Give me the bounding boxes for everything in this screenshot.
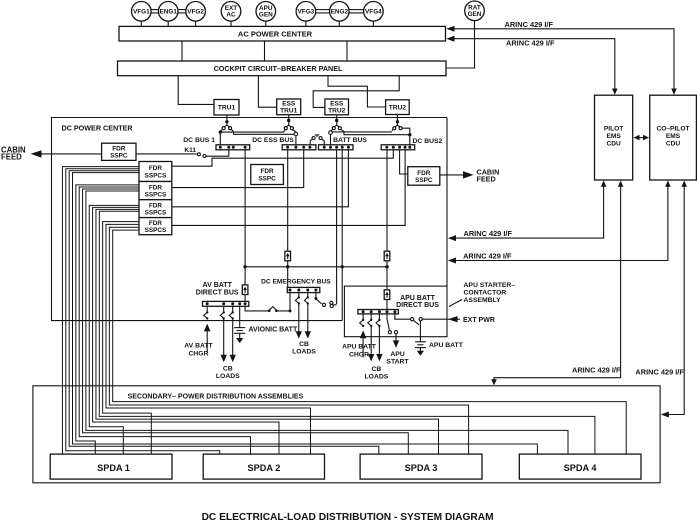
svg-text:DC BUS 1: DC BUS 1 [183, 137, 215, 144]
svg-text:START: START [386, 358, 409, 365]
svg-text:ARINC 429 I/F: ARINC 429 I/F [505, 20, 554, 29]
svg-text:CB: CB [371, 366, 381, 373]
svg-text:EMS: EMS [606, 133, 621, 140]
svg-text:CHGR: CHGR [349, 351, 369, 358]
svg-text:FDR: FDR [112, 146, 126, 153]
svg-text:SSPCS: SSPCS [145, 210, 167, 217]
svg-text:SPDA 3: SPDA 3 [405, 463, 438, 473]
svg-text:ARINC 429 I/F: ARINC 429 I/F [463, 252, 512, 261]
svg-text:BATT BUS: BATT BUS [333, 137, 367, 144]
svg-text:VFG1: VFG1 [133, 9, 150, 16]
svg-text:ARINC 429 I/F: ARINC 429 I/F [464, 229, 513, 238]
svg-text:CB: CB [223, 366, 233, 373]
svg-text:FDR: FDR [261, 168, 275, 175]
svg-text:CDU: CDU [606, 141, 621, 148]
svg-text:LOADS: LOADS [216, 373, 240, 380]
svg-text:SSPC: SSPC [110, 153, 128, 160]
svg-text:VFG3: VFG3 [298, 9, 315, 16]
svg-text:DC ELECTRICAL-LOAD DISTRIBUTIO: DC ELECTRICAL-LOAD DISTRIBUTION - SYSTEM… [202, 512, 494, 523]
svg-text:CO–PILOT: CO–PILOT [657, 126, 690, 133]
svg-text:APU BATT: APU BATT [429, 342, 464, 349]
svg-text:ENG1: ENG1 [159, 9, 177, 16]
svg-text:GEN: GEN [259, 12, 273, 19]
svg-text:APU: APU [390, 351, 404, 358]
svg-text:ESS: ESS [330, 100, 344, 107]
svg-text:K11: K11 [184, 147, 196, 154]
svg-text:ARINC 429 I/F: ARINC 429 I/F [506, 38, 555, 47]
svg-text:APU STARTER–: APU STARTER– [464, 282, 516, 289]
svg-text:ASSEMBLY: ASSEMBLY [464, 297, 502, 304]
svg-text:DC ESS BUS: DC ESS BUS [252, 137, 294, 144]
svg-text:AC: AC [226, 12, 236, 19]
svg-text:DIRECT BUS: DIRECT BUS [396, 302, 439, 309]
svg-text:CHGR: CHGR [188, 350, 208, 357]
svg-text:GEN: GEN [468, 11, 482, 18]
svg-text:AVIONIC BATT: AVIONIC BATT [249, 326, 298, 333]
svg-text:SSPCS: SSPCS [145, 172, 167, 179]
svg-text:SSPCS: SSPCS [145, 227, 167, 234]
svg-text:VFG2: VFG2 [187, 9, 204, 16]
svg-text:ARINC 429 I/F: ARINC 429 I/F [635, 367, 684, 376]
svg-text:EMS: EMS [666, 133, 681, 140]
svg-text:ENG2: ENG2 [331, 9, 349, 16]
svg-text:TRU2: TRU2 [389, 105, 407, 112]
svg-text:SSPC: SSPC [258, 175, 276, 182]
svg-text:DC EMERGENCY BUS: DC EMERGENCY BUS [261, 279, 331, 286]
svg-text:DC BUS2: DC BUS2 [413, 138, 443, 145]
svg-text:FDR: FDR [149, 202, 163, 209]
svg-text:ESS: ESS [282, 100, 296, 107]
svg-text:TRU1: TRU1 [218, 105, 236, 112]
svg-text:FDR: FDR [417, 170, 431, 177]
svg-text:FEED: FEED [1, 153, 22, 162]
svg-text:AC POWER CENTER: AC POWER CENTER [238, 30, 313, 39]
svg-text:LOADS: LOADS [292, 348, 316, 355]
svg-text:CONTACTOR: CONTACTOR [464, 289, 507, 296]
svg-text:FDR: FDR [149, 184, 163, 191]
svg-text:ARINC 429 I/F: ARINC 429 I/F [572, 366, 621, 375]
svg-text:SSPC: SSPC [415, 177, 433, 184]
svg-text:AV BATT: AV BATT [184, 343, 213, 350]
svg-text:FDR: FDR [149, 165, 163, 172]
svg-text:SECONDARY– POWER DISTRIBUTION: SECONDARY– POWER DISTRIBUTION ASSEMBLIES [128, 393, 304, 400]
svg-text:TRU2: TRU2 [328, 107, 346, 114]
svg-text:FEED: FEED [477, 174, 496, 183]
svg-text:PILOT: PILOT [604, 126, 623, 133]
svg-text:SPDA 4: SPDA 4 [564, 463, 598, 473]
svg-text:CB: CB [299, 341, 309, 348]
svg-text:SPDA 1: SPDA 1 [97, 463, 130, 473]
svg-text:TRU1: TRU1 [280, 107, 298, 114]
svg-text:CDU: CDU [666, 141, 681, 148]
svg-text:DIRECT BUS: DIRECT BUS [196, 290, 239, 297]
svg-text:DC POWER CENTER: DC POWER CENTER [62, 124, 134, 133]
svg-text:SPDA 2: SPDA 2 [247, 463, 280, 473]
svg-text:SSPCS: SSPCS [145, 192, 167, 199]
svg-text:FDR: FDR [149, 220, 163, 227]
svg-text:AV BATT: AV BATT [203, 282, 233, 289]
svg-text:VFG4: VFG4 [365, 9, 382, 16]
svg-text:EXT PWR: EXT PWR [463, 317, 495, 324]
svg-text:COCKPIT CIRCUIT–BREAKER PANEL: COCKPIT CIRCUIT–BREAKER PANEL [214, 64, 343, 73]
svg-text:LOADS: LOADS [365, 374, 389, 381]
svg-text:APU BATT: APU BATT [400, 295, 436, 302]
